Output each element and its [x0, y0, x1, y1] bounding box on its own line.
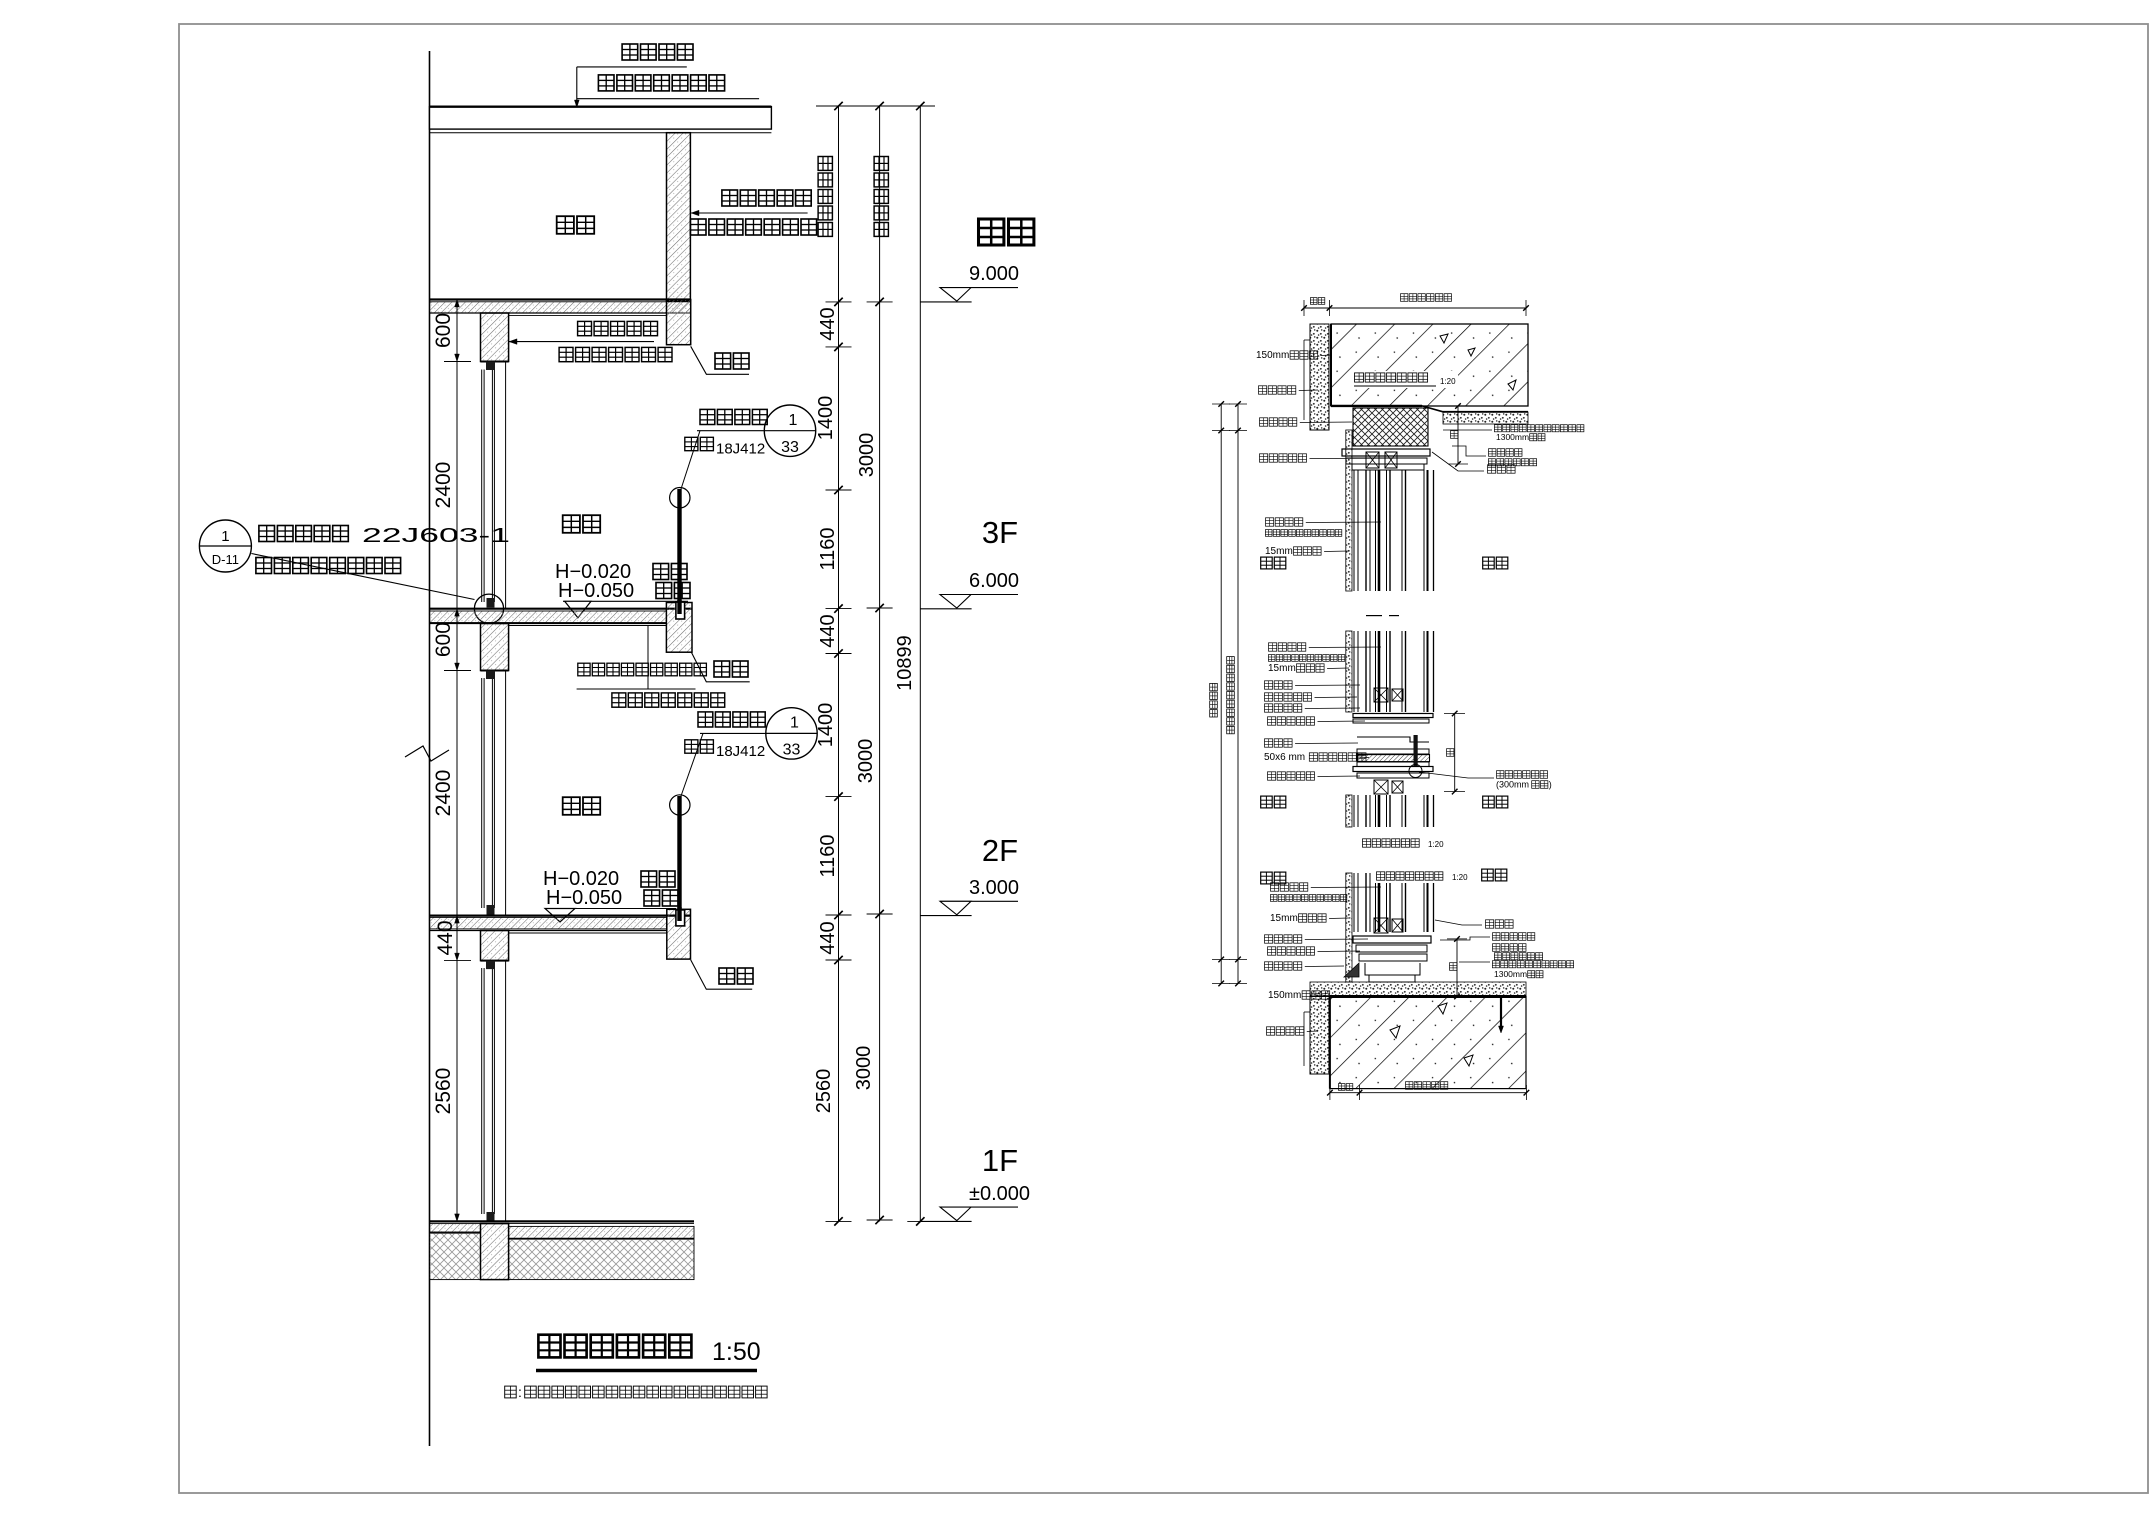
svg-text:2400: 2400: [432, 770, 455, 817]
svg-text:18J412: 18J412: [716, 743, 765, 760]
svg-text:): ): [1549, 779, 1552, 789]
svg-text::: :: [518, 1384, 522, 1400]
svg-text:440: 440: [817, 921, 839, 954]
svg-text:1: 1: [221, 528, 229, 545]
svg-text:1160: 1160: [817, 834, 839, 877]
svg-text:3000: 3000: [856, 433, 878, 478]
svg-text:1: 1: [790, 715, 799, 732]
svg-text:H−0.050: H−0.050: [558, 580, 634, 602]
svg-text:1300mm: 1300mm: [1494, 969, 1527, 979]
svg-text:1:50: 1:50: [712, 1338, 761, 1366]
svg-text:3000: 3000: [853, 1046, 875, 1091]
svg-text:(300mm: (300mm: [1496, 779, 1529, 789]
svg-text:2F: 2F: [982, 833, 1018, 868]
svg-text:1:20: 1:20: [1428, 840, 1444, 849]
svg-text:1400: 1400: [815, 396, 837, 441]
svg-text:6.000: 6.000: [969, 570, 1019, 592]
svg-text:600: 600: [432, 622, 455, 657]
svg-text:3000: 3000: [855, 739, 877, 784]
svg-text:440: 440: [817, 614, 839, 647]
svg-text:600: 600: [432, 313, 455, 348]
svg-text:15mm: 15mm: [1268, 663, 1296, 674]
svg-text:D-11: D-11: [212, 552, 239, 567]
svg-text:1:20: 1:20: [1440, 377, 1456, 386]
svg-text:3F: 3F: [982, 515, 1018, 550]
svg-text:1300mm: 1300mm: [1496, 432, 1529, 442]
svg-text:1:20: 1:20: [1452, 873, 1468, 882]
svg-text:1160: 1160: [817, 527, 839, 570]
svg-text:150mm: 150mm: [1268, 990, 1301, 1001]
svg-text:9.000: 9.000: [969, 263, 1019, 285]
svg-text:1400: 1400: [815, 703, 837, 748]
svg-text:2560: 2560: [813, 1069, 835, 1114]
svg-text:15mm: 15mm: [1265, 546, 1293, 557]
svg-text:H−0.050: H−0.050: [546, 887, 622, 909]
svg-text:1F: 1F: [982, 1143, 1018, 1178]
svg-text:440: 440: [817, 307, 839, 340]
svg-text:±0.000: ±0.000: [969, 1183, 1030, 1205]
svg-text:18J412: 18J412: [716, 441, 765, 458]
svg-text:15mm: 15mm: [1270, 913, 1298, 924]
svg-text:2400: 2400: [432, 462, 455, 509]
svg-text:22J603-1: 22J603-1: [362, 525, 510, 547]
svg-text:1: 1: [789, 412, 798, 429]
svg-text:33: 33: [783, 742, 801, 759]
svg-text:440: 440: [434, 920, 457, 955]
svg-text:2560: 2560: [432, 1068, 455, 1115]
svg-text:10899: 10899: [894, 635, 916, 691]
svg-text:33: 33: [781, 439, 799, 456]
svg-text:3.000: 3.000: [969, 877, 1019, 899]
svg-text:50x6 mm: 50x6 mm: [1264, 752, 1305, 763]
svg-text:150mm: 150mm: [1256, 350, 1289, 361]
